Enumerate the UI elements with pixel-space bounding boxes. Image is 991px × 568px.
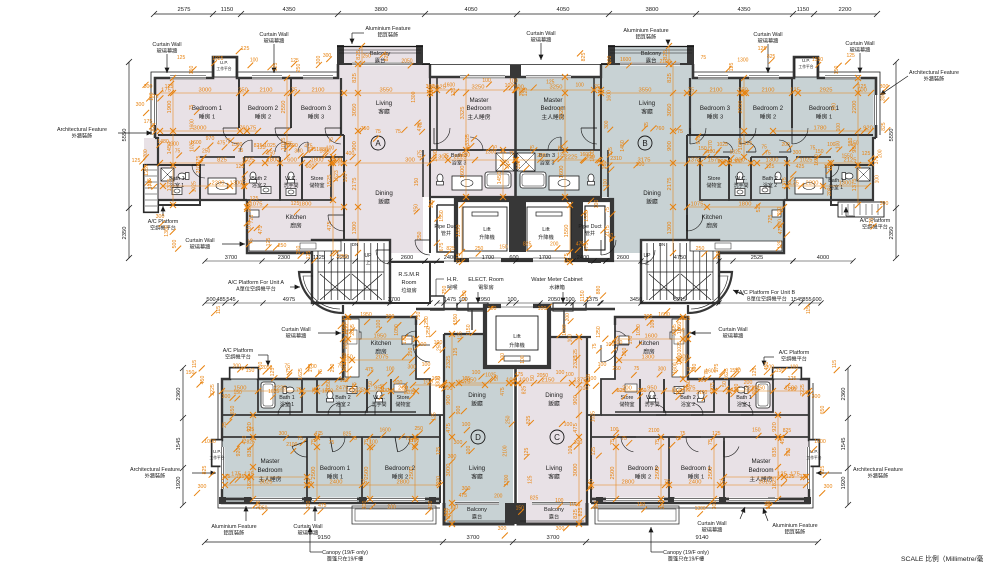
svg-text:75: 75 <box>594 84 600 90</box>
svg-text:250: 250 <box>363 54 372 60</box>
svg-text:115: 115 <box>192 360 198 368</box>
svg-text:125: 125 <box>786 474 795 480</box>
svg-text:1525: 1525 <box>327 175 333 188</box>
svg-text:A: A <box>375 139 381 148</box>
svg-text:1550: 1550 <box>344 324 350 335</box>
svg-text:150: 150 <box>637 502 646 508</box>
svg-text:1950: 1950 <box>374 333 387 339</box>
svg-text:3025: 3025 <box>260 479 273 485</box>
svg-text:升降機: 升降機 <box>509 341 525 349</box>
svg-text:3325: 3325 <box>559 107 565 120</box>
svg-text:100: 100 <box>149 92 155 101</box>
svg-text:475: 475 <box>318 503 327 509</box>
svg-text:客廳: 客廳 <box>548 473 560 481</box>
svg-text:1700: 1700 <box>482 255 494 261</box>
svg-text:Balcony: Balcony <box>544 507 564 513</box>
svg-text:25: 25 <box>222 422 228 428</box>
svg-text:Bath 1: Bath 1 <box>736 395 752 401</box>
svg-text:75: 75 <box>701 55 707 61</box>
svg-text:A/C Platform: A/C Platform <box>223 348 254 354</box>
svg-text:475: 475 <box>304 144 313 150</box>
svg-text:100: 100 <box>594 200 600 209</box>
svg-text:1375: 1375 <box>167 179 173 192</box>
svg-text:2525: 2525 <box>751 255 763 261</box>
svg-text:75: 75 <box>592 343 598 349</box>
svg-text:A/C Platform For Unit B: A/C Platform For Unit B <box>739 290 796 296</box>
svg-text:Aluminium Feature: Aluminium Feature <box>365 26 410 32</box>
svg-text:75: 75 <box>655 439 661 445</box>
svg-text:2550: 2550 <box>281 101 287 114</box>
svg-text:Bath 2: Bath 2 <box>680 395 696 401</box>
svg-text:5550: 5550 <box>122 129 128 142</box>
svg-text:75: 75 <box>351 436 357 442</box>
svg-text:Aluminium Feature: Aluminium Feature <box>623 28 668 34</box>
svg-text:浴室 1: 浴室 1 <box>280 401 294 408</box>
svg-text:Bedroom 1: Bedroom 1 <box>320 465 351 472</box>
svg-text:2600: 2600 <box>401 255 413 261</box>
svg-text:飯廳: 飯廳 <box>548 400 560 408</box>
svg-text:1600: 1600 <box>342 361 348 372</box>
svg-text:825: 825 <box>581 53 587 62</box>
svg-text:Architectural Feature: Architectural Feature <box>853 467 903 473</box>
svg-text:300: 300 <box>426 84 435 90</box>
svg-text:睡房 2: 睡房 2 <box>255 113 271 121</box>
svg-text:75: 75 <box>296 388 302 394</box>
svg-text:825: 825 <box>521 386 527 395</box>
svg-text:475: 475 <box>573 423 579 433</box>
svg-text:3450: 3450 <box>630 297 642 303</box>
svg-text:3250: 3250 <box>472 84 485 90</box>
svg-text:Bath 2: Bath 2 <box>335 395 351 401</box>
svg-text:125: 125 <box>591 447 597 456</box>
svg-text:9140: 9140 <box>696 535 709 541</box>
svg-text:75: 75 <box>329 440 335 446</box>
svg-text:475: 475 <box>459 493 468 499</box>
svg-text:200: 200 <box>494 493 503 499</box>
svg-text:2550: 2550 <box>738 101 744 114</box>
svg-text:Kitchen: Kitchen <box>371 340 392 347</box>
svg-text:SCALE 比例（Millimetre/毫: SCALE 比例（Millimetre/毫 <box>901 554 984 563</box>
svg-text:75: 75 <box>443 154 449 160</box>
svg-text:1300: 1300 <box>168 141 179 147</box>
svg-text:475: 475 <box>576 242 585 248</box>
svg-text:Bath 2: Bath 2 <box>762 176 778 182</box>
svg-text:125: 125 <box>342 316 351 322</box>
svg-text:125: 125 <box>608 147 614 156</box>
svg-text:50: 50 <box>722 381 728 387</box>
svg-text:1475: 1475 <box>444 297 456 303</box>
svg-text:1150: 1150 <box>580 290 586 301</box>
svg-text:1550: 1550 <box>456 225 462 238</box>
svg-text:2500: 2500 <box>610 467 616 480</box>
svg-text:100: 100 <box>472 370 481 376</box>
svg-text:300: 300 <box>198 484 207 490</box>
svg-text:玻璃幕牆: 玻璃幕牆 <box>264 37 285 45</box>
svg-text:A單位空調機平台: A單位空調機平台 <box>236 285 276 293</box>
svg-text:4975: 4975 <box>283 297 295 303</box>
svg-text:3800: 3800 <box>646 7 659 13</box>
svg-text:工作平台: 工作平台 <box>216 66 231 71</box>
svg-text:Kitchen: Kitchen <box>702 214 723 221</box>
svg-text:75: 75 <box>644 122 650 128</box>
svg-text:125: 125 <box>306 251 312 260</box>
svg-text:545: 545 <box>226 297 235 303</box>
svg-text:工作平台: 工作平台 <box>806 455 821 460</box>
svg-text:125: 125 <box>408 389 417 395</box>
svg-text:150: 150 <box>414 178 420 187</box>
svg-text:1920: 1920 <box>841 477 847 490</box>
svg-text:250: 250 <box>202 148 211 154</box>
svg-text:2100: 2100 <box>196 162 202 173</box>
svg-text:Curtain Wall: Curtain Wall <box>281 327 310 333</box>
svg-text:水錶箱: 水錶箱 <box>549 283 565 291</box>
svg-text:1800: 1800 <box>739 201 752 207</box>
svg-text:3800: 3800 <box>375 7 388 13</box>
svg-text:W.C.: W.C. <box>285 176 297 182</box>
svg-text:儲物室: 儲物室 <box>706 182 721 189</box>
svg-text:825: 825 <box>202 466 208 475</box>
svg-text:鋁質裝飾: 鋁質裝飾 <box>378 31 399 39</box>
svg-text:125: 125 <box>273 63 279 72</box>
svg-text:970: 970 <box>206 136 215 142</box>
svg-text:4750: 4750 <box>674 255 686 261</box>
svg-text:Canopy (19/F only): Canopy (19/F only) <box>663 550 709 556</box>
svg-text:Master: Master <box>470 97 489 104</box>
svg-text:Curtain Wall: Curtain Wall <box>152 42 181 48</box>
svg-text:簷篷只在19/F樓: 簷篷只在19/F樓 <box>327 555 363 563</box>
svg-text:9150: 9150 <box>318 535 331 541</box>
svg-text:2100: 2100 <box>286 442 297 448</box>
svg-text:300: 300 <box>498 526 507 532</box>
svg-text:250: 250 <box>475 246 484 252</box>
svg-text:Living: Living <box>469 465 486 472</box>
svg-text:Architectural Feature: Architectural Feature <box>909 70 959 76</box>
svg-text:Lift: Lift <box>513 334 521 340</box>
svg-text:1025: 1025 <box>264 143 276 149</box>
svg-text:鋁質裝飾: 鋁質裝飾 <box>785 528 806 536</box>
svg-text:200: 200 <box>143 149 149 158</box>
svg-text:100: 100 <box>565 297 574 303</box>
svg-text:150: 150 <box>499 244 508 250</box>
svg-text:125: 125 <box>241 46 250 52</box>
svg-text:2360: 2360 <box>841 388 847 401</box>
svg-text:玻璃幕牆: 玻璃幕牆 <box>531 36 552 44</box>
svg-text:100: 100 <box>564 422 573 428</box>
svg-text:2100: 2100 <box>696 390 707 396</box>
svg-text:Curtain Wall: Curtain Wall <box>526 31 555 37</box>
svg-text:浴室 3: 浴室 3 <box>540 159 555 167</box>
svg-text:1600: 1600 <box>606 90 612 101</box>
svg-text:3000: 3000 <box>194 125 207 131</box>
svg-text:125: 125 <box>165 84 174 90</box>
svg-text:760: 760 <box>656 126 665 132</box>
svg-text:1800: 1800 <box>299 201 312 207</box>
svg-text:2475: 2475 <box>336 385 349 391</box>
svg-text:A/C Platform For Unit A: A/C Platform For Unit A <box>228 280 284 286</box>
svg-text:1600: 1600 <box>580 152 591 158</box>
svg-text:150: 150 <box>189 66 195 75</box>
svg-text:睡房 1: 睡房 1 <box>199 113 215 121</box>
svg-text:500: 500 <box>206 297 215 303</box>
svg-text:3015: 3015 <box>759 479 772 485</box>
svg-text:1920: 1920 <box>176 477 182 490</box>
svg-text:125: 125 <box>291 201 300 207</box>
svg-text:125: 125 <box>257 145 266 151</box>
svg-text:2100: 2100 <box>648 428 659 434</box>
svg-text:1300: 1300 <box>695 506 706 512</box>
svg-text:管井: 管井 <box>441 230 451 237</box>
svg-text:1150: 1150 <box>221 7 233 13</box>
svg-text:200: 200 <box>387 505 396 511</box>
svg-text:1025: 1025 <box>569 502 580 508</box>
svg-text:100: 100 <box>832 103 838 112</box>
svg-text:825: 825 <box>667 73 673 83</box>
svg-text:150: 150 <box>246 368 255 374</box>
svg-text:825: 825 <box>343 431 352 437</box>
svg-text:浴室 2: 浴室 2 <box>252 182 266 189</box>
svg-text:100: 100 <box>507 297 516 303</box>
svg-text:Water Meter Cabinet: Water Meter Cabinet <box>531 277 583 283</box>
svg-text:100: 100 <box>369 439 378 445</box>
svg-text:Balcony: Balcony <box>467 507 487 513</box>
svg-text:U.P.: U.P. <box>213 449 221 454</box>
svg-text:125: 125 <box>236 164 245 170</box>
svg-text:3000: 3000 <box>199 87 212 93</box>
svg-text:空調機平台: 空調機平台 <box>225 353 251 361</box>
svg-text:2600: 2600 <box>617 255 629 261</box>
svg-text:125: 125 <box>458 331 464 340</box>
svg-text:Kitchen: Kitchen <box>639 340 660 347</box>
svg-text:300: 300 <box>428 501 434 510</box>
svg-text:Lift: Lift <box>542 227 550 233</box>
svg-text:4000: 4000 <box>817 255 829 261</box>
svg-text:Store: Store <box>311 176 324 182</box>
svg-text:1600: 1600 <box>620 57 631 63</box>
svg-text:Curtain Wall: Curtain Wall <box>697 521 726 527</box>
svg-text:Room: Room <box>402 280 417 286</box>
svg-text:300: 300 <box>880 93 886 102</box>
svg-text:Curtain Wall: Curtain Wall <box>259 32 288 38</box>
svg-text:升降機: 升降機 <box>479 233 495 241</box>
svg-text:900: 900 <box>667 141 673 151</box>
svg-text:1300: 1300 <box>737 57 748 63</box>
svg-text:B: B <box>642 139 647 148</box>
svg-text:100: 100 <box>766 365 775 371</box>
svg-text:露台: 露台 <box>646 57 657 65</box>
svg-text:2100: 2100 <box>762 87 775 93</box>
svg-text:浴室 2: 浴室 2 <box>763 182 777 189</box>
svg-text:上: 上 <box>645 259 650 265</box>
svg-text:B單位空調機平台: B單位空調機平台 <box>747 295 787 303</box>
svg-text:1545: 1545 <box>176 438 182 451</box>
svg-text:125: 125 <box>675 389 684 395</box>
svg-text:Store: Store <box>397 395 410 401</box>
svg-text:Master: Master <box>544 97 563 104</box>
svg-text:425: 425 <box>796 164 805 170</box>
svg-text:100: 100 <box>827 142 836 148</box>
svg-text:Store: Store <box>621 395 634 401</box>
svg-text:Bedroom 1: Bedroom 1 <box>192 105 223 112</box>
svg-text:上: 上 <box>366 259 371 265</box>
svg-text:Bedroom: Bedroom <box>466 105 491 112</box>
svg-text:1300: 1300 <box>411 91 417 102</box>
svg-text:250: 250 <box>506 415 512 424</box>
svg-text:1000: 1000 <box>814 439 826 445</box>
svg-text:3700: 3700 <box>547 535 560 541</box>
svg-text:浴室 2: 浴室 2 <box>681 401 695 408</box>
svg-text:3550: 3550 <box>639 87 652 93</box>
svg-text:1545: 1545 <box>841 438 847 451</box>
svg-text:125: 125 <box>147 178 153 187</box>
svg-text:100: 100 <box>568 446 574 455</box>
svg-text:1600: 1600 <box>460 166 466 179</box>
svg-text:125: 125 <box>246 427 255 433</box>
svg-text:Bedroom 2: Bedroom 2 <box>753 105 784 112</box>
svg-text:飯廳: 飯廳 <box>378 198 390 206</box>
svg-text:垃圾房: 垃圾房 <box>401 286 417 294</box>
svg-text:75: 75 <box>708 439 714 445</box>
svg-text:300: 300 <box>448 454 457 460</box>
svg-text:Canopy (19/F only): Canopy (19/F only) <box>322 550 368 556</box>
svg-text:125: 125 <box>177 55 186 61</box>
svg-text:125: 125 <box>744 141 753 147</box>
svg-text:200: 200 <box>394 380 403 386</box>
svg-text:2225: 2225 <box>210 384 216 396</box>
svg-text:100: 100 <box>565 372 574 378</box>
svg-text:825: 825 <box>881 122 887 131</box>
svg-text:150: 150 <box>752 428 761 434</box>
svg-text:100: 100 <box>376 320 382 329</box>
svg-text:1025: 1025 <box>730 150 741 156</box>
svg-text:Curtain Wall: Curtain Wall <box>718 327 747 333</box>
svg-text:3050: 3050 <box>667 104 673 117</box>
svg-text:睡房 1: 睡房 1 <box>816 113 832 121</box>
svg-text:空調機平台: 空調機平台 <box>781 355 807 363</box>
svg-text:2200: 2200 <box>852 101 858 114</box>
svg-text:Bedroom 3: Bedroom 3 <box>700 105 731 112</box>
svg-text:外牆裝飾: 外牆裝飾 <box>924 75 945 83</box>
svg-text:1780: 1780 <box>814 125 827 131</box>
svg-text:3700: 3700 <box>225 255 237 261</box>
svg-text:920: 920 <box>863 125 873 131</box>
svg-text:125: 125 <box>546 80 555 86</box>
svg-text:825: 825 <box>820 466 826 475</box>
svg-text:100: 100 <box>580 386 589 392</box>
svg-text:1300: 1300 <box>352 222 358 235</box>
svg-text:1300: 1300 <box>230 180 243 186</box>
svg-text:升降機: 升降機 <box>538 233 554 241</box>
svg-text:100: 100 <box>462 422 471 428</box>
svg-text:管井: 管井 <box>585 230 595 237</box>
svg-text:150: 150 <box>850 140 859 146</box>
svg-text:1550: 1550 <box>459 152 470 158</box>
svg-text:2200: 2200 <box>806 180 819 186</box>
svg-text:2100: 2100 <box>312 87 325 93</box>
svg-text:1300: 1300 <box>504 474 510 485</box>
svg-text:1600: 1600 <box>590 150 596 162</box>
svg-text:855: 855 <box>802 297 811 303</box>
svg-text:2325: 2325 <box>446 356 452 369</box>
svg-text:洗手間: 洗手間 <box>733 182 748 189</box>
svg-text:2200: 2200 <box>839 7 852 13</box>
svg-text:4050: 4050 <box>557 7 570 13</box>
svg-text:1300: 1300 <box>485 150 496 156</box>
svg-text:1025: 1025 <box>242 157 255 163</box>
svg-text:1600: 1600 <box>189 119 195 130</box>
svg-text:Lift: Lift <box>483 227 491 233</box>
svg-text:2100: 2100 <box>260 87 273 93</box>
svg-text:825: 825 <box>217 157 227 163</box>
svg-text:475: 475 <box>417 123 423 132</box>
svg-text:825: 825 <box>151 123 157 132</box>
svg-text:75: 75 <box>250 125 256 131</box>
svg-text:1300: 1300 <box>730 159 742 165</box>
svg-text:300: 300 <box>294 149 303 155</box>
svg-text:1600: 1600 <box>559 166 565 179</box>
svg-text:露台: 露台 <box>472 513 482 521</box>
svg-text:1800: 1800 <box>311 157 324 163</box>
svg-text:客廳: 客廳 <box>378 108 390 116</box>
svg-text:UP: UP <box>644 253 652 259</box>
svg-text:100: 100 <box>614 340 623 346</box>
svg-text:300: 300 <box>556 526 565 532</box>
svg-text:1700: 1700 <box>539 255 551 261</box>
svg-text:150: 150 <box>815 149 824 155</box>
svg-text:睡房 2: 睡房 2 <box>760 113 776 121</box>
svg-text:Curtain Wall: Curtain Wall <box>293 524 322 530</box>
svg-text:300: 300 <box>306 501 312 510</box>
svg-text:Dining: Dining <box>375 190 393 197</box>
svg-text:1050: 1050 <box>636 324 642 336</box>
svg-text:3550: 3550 <box>380 87 393 93</box>
svg-text:100: 100 <box>343 174 349 183</box>
svg-text:2360: 2360 <box>176 388 182 401</box>
svg-text:125: 125 <box>788 376 797 382</box>
svg-text:外牆裝飾: 外牆裝飾 <box>145 472 166 480</box>
svg-text:2500: 2500 <box>311 467 317 480</box>
svg-text:475: 475 <box>500 387 506 396</box>
svg-text:A/C Platform: A/C Platform <box>860 218 891 224</box>
svg-text:玻璃幕牆: 玻璃幕牆 <box>723 332 744 340</box>
svg-text:200: 200 <box>781 142 790 148</box>
svg-text:Bath 1: Bath 1 <box>279 395 295 401</box>
svg-text:75: 75 <box>677 129 683 135</box>
svg-text:2050: 2050 <box>548 297 560 303</box>
svg-text:Architectural Feature: Architectural Feature <box>130 467 180 473</box>
svg-text:1025: 1025 <box>268 389 279 395</box>
svg-text:100: 100 <box>576 82 585 88</box>
svg-text:洗手間: 洗手間 <box>644 401 659 408</box>
svg-text:2075: 2075 <box>376 354 389 360</box>
svg-text:2050: 2050 <box>401 59 412 65</box>
svg-text:825: 825 <box>356 50 362 60</box>
svg-text:100: 100 <box>308 364 317 370</box>
svg-text:3000: 3000 <box>446 464 452 477</box>
svg-text:75: 75 <box>297 436 303 442</box>
svg-text:725: 725 <box>768 215 774 224</box>
svg-text:300: 300 <box>222 394 231 400</box>
svg-text:Pipe Duct: Pipe Duct <box>578 224 602 230</box>
svg-text:250: 250 <box>696 246 705 252</box>
svg-text:露台: 露台 <box>549 513 559 521</box>
svg-text:Bedroom: Bedroom <box>257 467 282 474</box>
svg-text:4350: 4350 <box>738 7 751 13</box>
svg-text:2500: 2500 <box>409 467 415 480</box>
svg-text:Living: Living <box>639 100 656 107</box>
svg-text:3050: 3050 <box>352 104 358 117</box>
svg-text:200: 200 <box>788 387 797 393</box>
svg-text:250: 250 <box>417 231 423 240</box>
